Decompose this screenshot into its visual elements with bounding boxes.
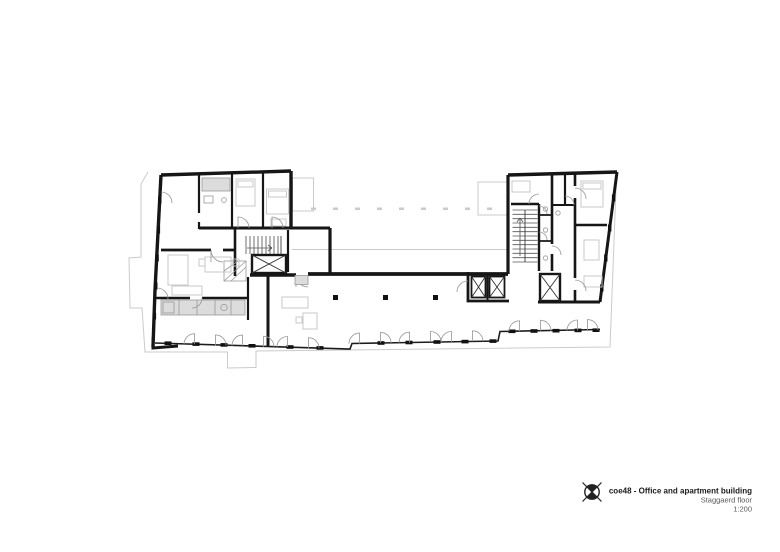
street-facade [155,320,600,350]
shaft-box [295,276,308,285]
right-elevator [540,274,560,301]
floor-plan-canvas: coe48 - Office and apartment building St… [0,0,780,552]
floor-label: Staggaerd floor [701,496,753,505]
right-furniture [512,181,603,287]
site-outline [129,172,617,368]
left-wing [153,171,330,348]
left-stair [246,236,281,254]
kitchen-counter [161,300,245,315]
central-hall [295,272,509,301]
north-compass-icon [583,483,602,502]
courtyard-markers [311,208,492,211]
right-stair [513,210,538,262]
hall-elevator-core [457,272,509,301]
project-title: coe48 - Office and apartment building [609,487,752,496]
bathroom [202,178,230,203]
left-elevator [252,255,286,273]
drawing-sheet: coe48 - Office and apartment building St… [0,0,780,552]
scale-label: 1:200 [733,505,752,514]
facade-door-swings [184,320,598,349]
right-wing [508,172,617,302]
title-block: coe48 - Office and apartment building St… [583,483,753,514]
columns [333,295,438,300]
